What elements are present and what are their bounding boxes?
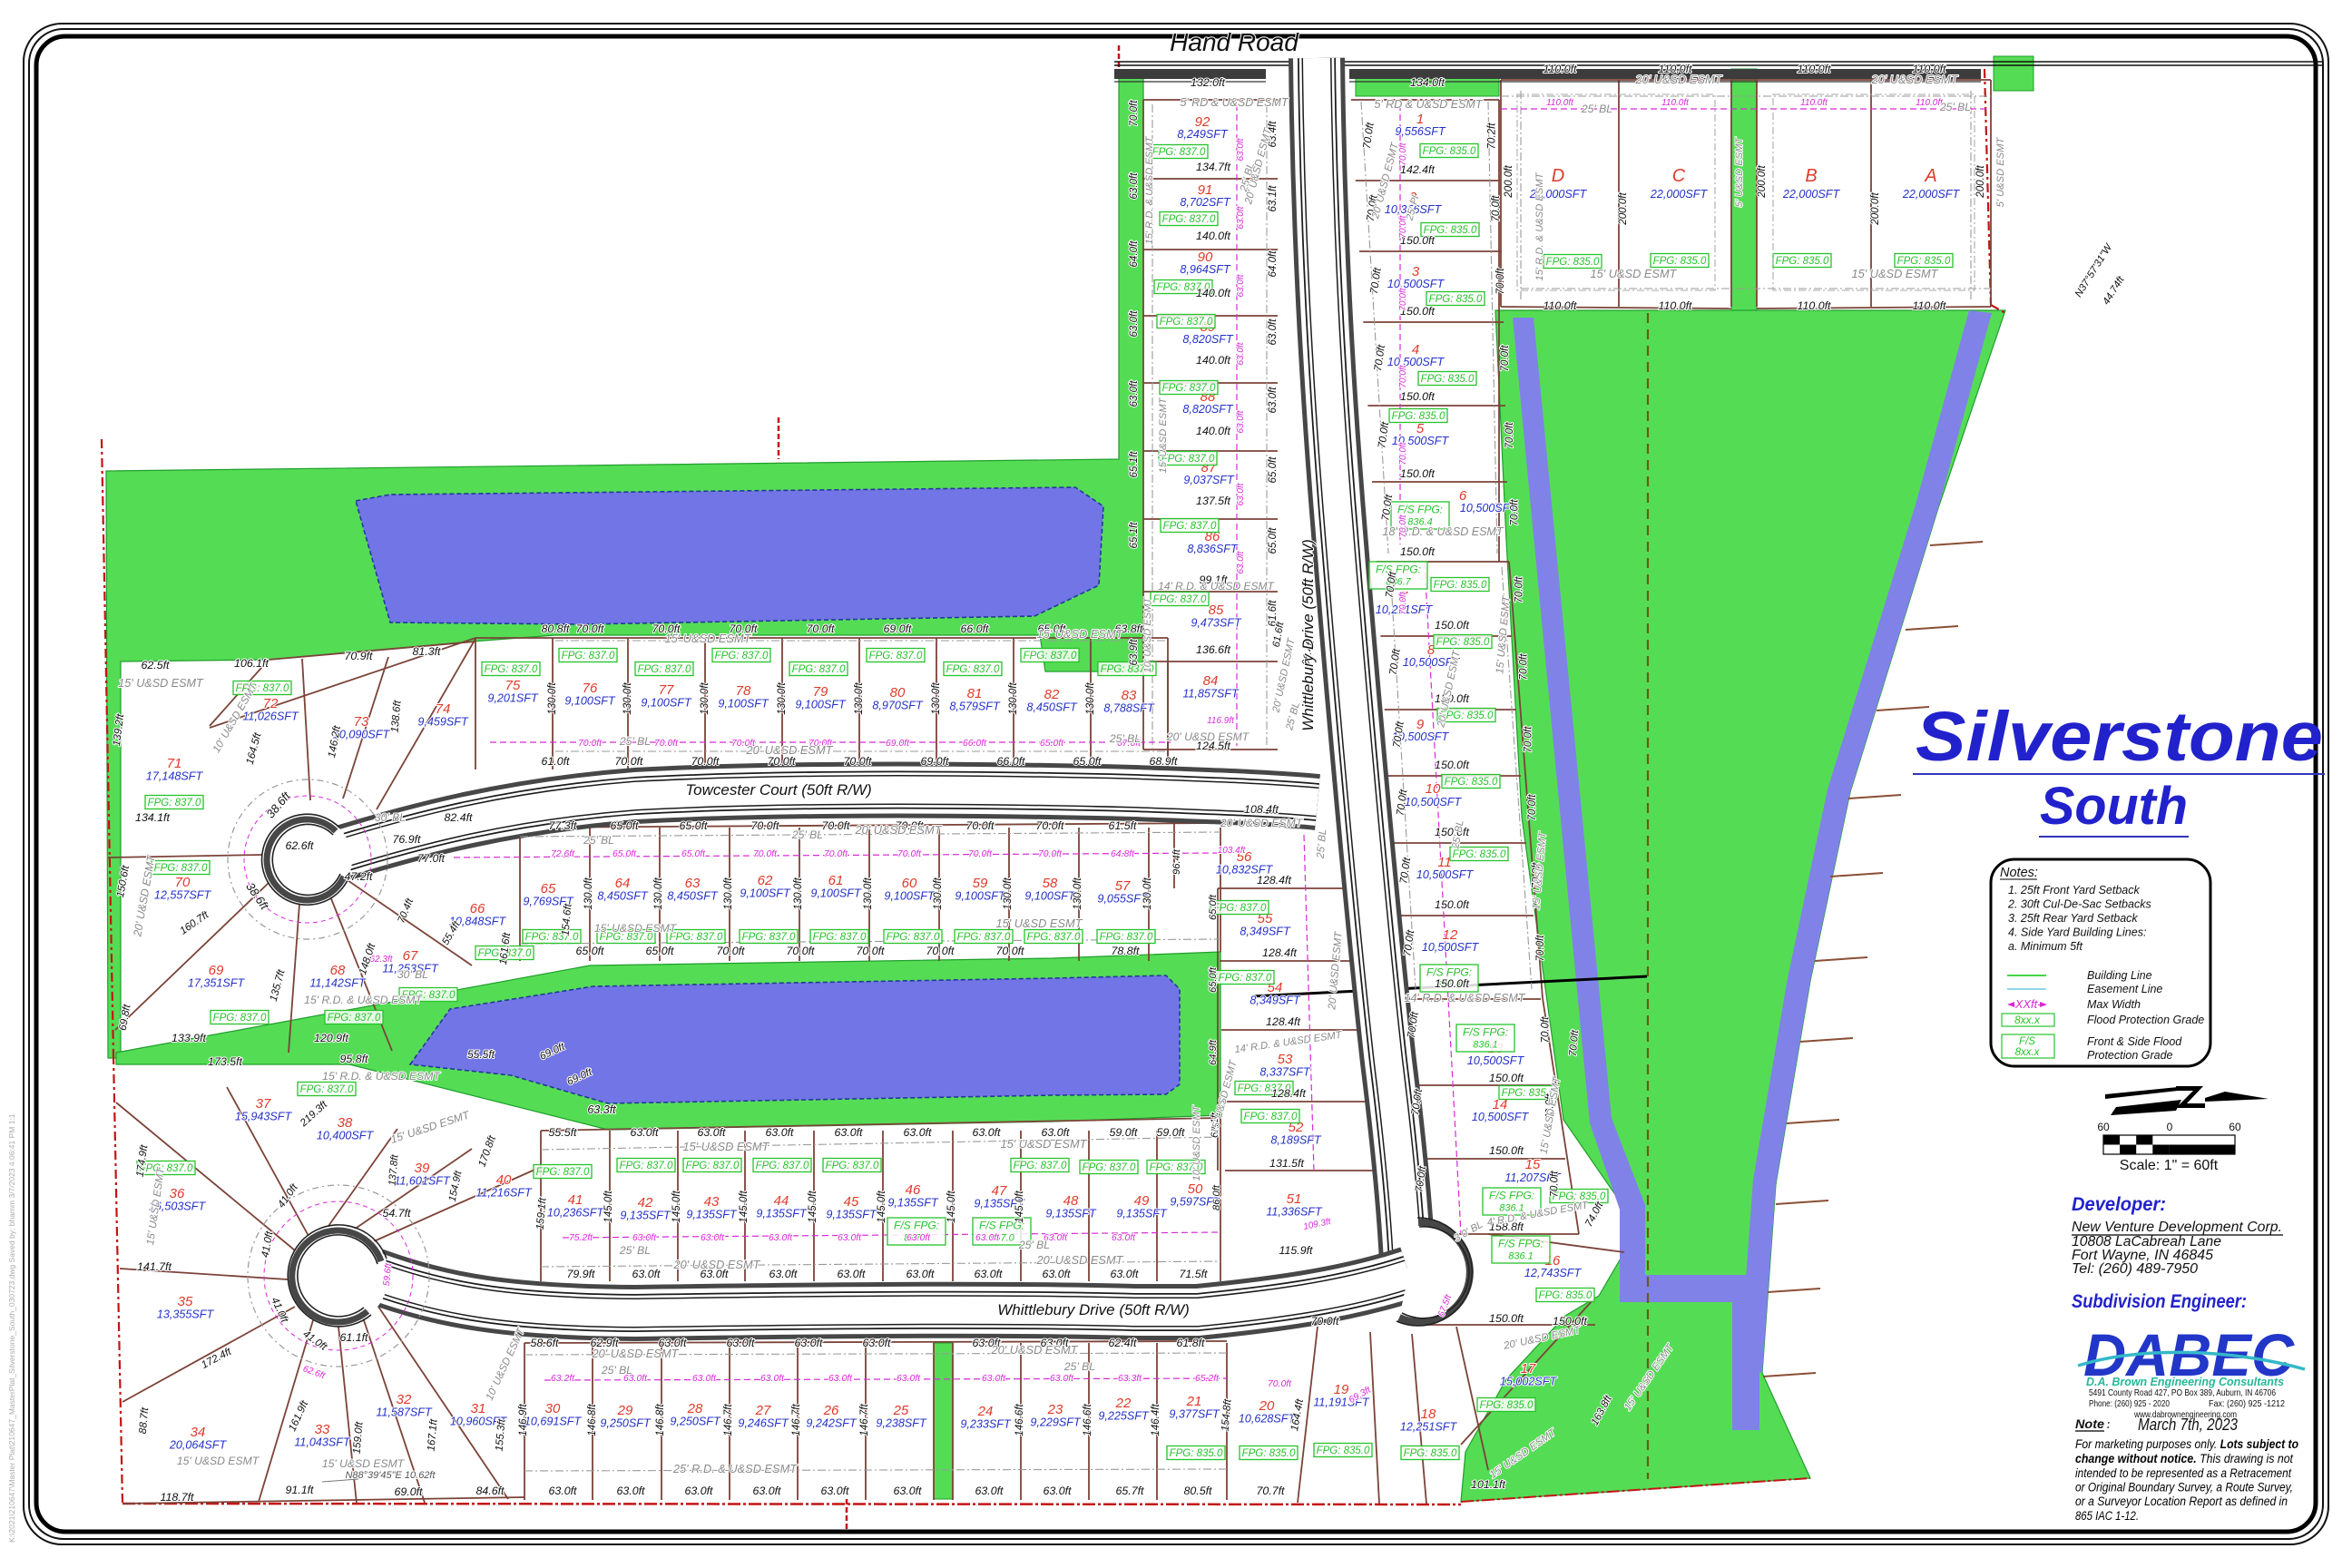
svg-text:18: 18 xyxy=(1421,1406,1436,1422)
svg-text:63.0ft: 63.0ft xyxy=(1128,310,1140,338)
svg-text:5' U&SD ESMT: 5' U&SD ESMT xyxy=(1734,136,1745,207)
svg-text:8,964SFT: 8,964SFT xyxy=(1180,263,1231,276)
svg-text:9,100SFT: 9,100SFT xyxy=(810,887,862,900)
svg-text:145.0ft: 145.0ft xyxy=(876,1191,887,1223)
svg-text:68: 68 xyxy=(330,963,346,978)
svg-text:69.0ft: 69.0ft xyxy=(883,622,912,635)
svg-text:FPG: 837.0: FPG: 837.0 xyxy=(638,664,691,675)
svg-text:82: 82 xyxy=(1044,687,1060,702)
svg-text:62.6ft: 62.6ft xyxy=(285,839,314,852)
svg-text:10,500SFT: 10,500SFT xyxy=(1405,796,1463,808)
svg-text:60: 60 xyxy=(2097,1121,2110,1133)
svg-text:130.0ft: 130.0ft xyxy=(1007,682,1019,715)
svg-text:FPG: 835.0: FPG: 835.0 xyxy=(1453,849,1506,860)
svg-text:9,556SFT: 9,556SFT xyxy=(1395,125,1446,138)
svg-text:14' R.D. & U&SD ESMT: 14' R.D. & U&SD ESMT xyxy=(1158,580,1275,593)
svg-text:77.0ft: 77.0ft xyxy=(417,852,446,865)
svg-text:FPG: 837.0: FPG: 837.0 xyxy=(1244,1112,1298,1122)
svg-text:FPG: 837.0: FPG: 837.0 xyxy=(1083,1162,1136,1173)
svg-text:63.0ft: 63.0ft xyxy=(765,1126,794,1139)
svg-text:8,970SFT: 8,970SFT xyxy=(872,700,924,712)
svg-text:63.0ft: 63.0ft xyxy=(726,1337,755,1349)
svg-text:FPG: 837.0: FPG: 837.0 xyxy=(869,651,923,661)
svg-text:22,000SFT: 22,000SFT xyxy=(1902,188,1961,201)
svg-text:79: 79 xyxy=(813,684,828,700)
svg-text:70.0ft: 70.0ft xyxy=(654,739,679,749)
svg-text:FPG: 837.0: FPG: 837.0 xyxy=(1153,594,1207,605)
svg-text:150.0ft: 150.0ft xyxy=(1489,1072,1524,1084)
svg-text:70.9ft: 70.9ft xyxy=(344,650,373,662)
svg-text:57: 57 xyxy=(1115,878,1131,894)
svg-text:11,216SFT: 11,216SFT xyxy=(475,1187,533,1200)
svg-text:65.2ft: 65.2ft xyxy=(1195,1374,1220,1384)
svg-text:63: 63 xyxy=(685,876,701,891)
svg-text:63.0ft: 63.0ft xyxy=(837,1268,866,1280)
svg-text:25' BL: 25' BL xyxy=(583,834,614,847)
svg-text:FPG: 837.0: FPG: 837.0 xyxy=(887,932,940,943)
svg-text:70.0ft: 70.0ft xyxy=(750,819,779,832)
svg-text:141.7ft: 141.7ft xyxy=(137,1260,171,1273)
svg-text:8,450SFT: 8,450SFT xyxy=(1026,701,1078,714)
svg-text:47.2ft: 47.2ft xyxy=(344,870,373,883)
svg-text:9,201SFT: 9,201SFT xyxy=(487,692,539,705)
svg-text:15' R.D. & U&SD ESMT: 15' R.D. & U&SD ESMT xyxy=(322,1070,441,1083)
svg-text:70.0ft: 70.0ft xyxy=(1035,819,1064,832)
svg-text:70.0ft: 70.0ft xyxy=(786,945,815,957)
svg-text:146.7ft: 146.7ft xyxy=(858,1404,870,1436)
svg-text:FPG: 835.0: FPG: 835.0 xyxy=(1317,1445,1370,1456)
svg-text:FPG: 837.0: FPG: 837.0 xyxy=(1024,651,1077,661)
svg-text:B: B xyxy=(1805,166,1817,186)
svg-text:41: 41 xyxy=(568,1192,583,1208)
svg-text:145.0ft: 145.0ft xyxy=(738,1191,750,1223)
svg-text:59.0ft: 59.0ft xyxy=(1109,1126,1138,1139)
svg-text:70.0ft: 70.0ft xyxy=(1494,268,1506,295)
svg-text:146.8ft: 146.8ft xyxy=(654,1404,666,1436)
svg-text:58: 58 xyxy=(1043,876,1058,891)
svg-text:69: 69 xyxy=(209,963,224,978)
svg-text:FPG: 837.0: FPG: 837.0 xyxy=(686,1161,740,1171)
svg-text:110.0ft: 110.0ft xyxy=(1913,299,1947,312)
svg-text:150.0ft: 150.0ft xyxy=(1489,1144,1524,1157)
svg-text:9,135SFT: 9,135SFT xyxy=(620,1210,671,1222)
svg-text:FPG: 837.0: FPG: 837.0 xyxy=(536,1167,590,1178)
svg-text:63.0ft: 63.0ft xyxy=(632,1233,657,1243)
svg-text:146.7ft: 146.7ft xyxy=(790,1404,802,1436)
svg-text:15' U&SD ESMT: 15' U&SD ESMT xyxy=(683,1140,770,1153)
svg-text:64: 64 xyxy=(615,876,631,891)
svg-text:75.2ft: 75.2ft xyxy=(569,1233,593,1243)
svg-text:145.0ft: 145.0ft xyxy=(603,1191,614,1223)
svg-text:FPG: 835.0: FPG: 835.0 xyxy=(1392,411,1445,422)
svg-text:70.0ft: 70.0ft xyxy=(968,849,993,859)
svg-text:FPG: 837.0: FPG: 837.0 xyxy=(1219,973,1272,984)
svg-text:70.0ft: 70.0ft xyxy=(856,945,885,957)
svg-text:8,450SFT: 8,450SFT xyxy=(597,890,649,903)
svg-text:63.0ft: 63.0ft xyxy=(697,1126,726,1139)
svg-text:25' R.D. & U&SD ESMT: 25' R.D. & U&SD ESMT xyxy=(672,1462,798,1475)
svg-text:70.0ft: 70.0ft xyxy=(716,945,745,957)
svg-text:FPG: 837.0: FPG: 837.0 xyxy=(485,664,538,675)
svg-text:140.0ft: 140.0ft xyxy=(1196,425,1230,437)
svg-text:110.0ft: 110.0ft xyxy=(1798,299,1832,312)
svg-text:63.0ft: 63.0ft xyxy=(1043,1485,1072,1497)
svg-text:15' U&SD ESMT: 15' U&SD ESMT xyxy=(1852,267,1939,280)
svg-text:63.0ft: 63.0ft xyxy=(1128,172,1140,200)
svg-text:110.0ft: 110.0ft xyxy=(1546,98,1574,108)
svg-text:FPG: 837.0: FPG: 837.0 xyxy=(957,932,1011,943)
svg-text:150.0ft: 150.0ft xyxy=(1435,977,1469,990)
svg-text:70.0ft: 70.0ft xyxy=(753,849,778,859)
svg-text:35: 35 xyxy=(178,1294,193,1309)
svg-text:FPG: 837.0: FPG: 837.0 xyxy=(1161,454,1215,465)
svg-text:130.0ft: 130.0ft xyxy=(862,877,874,910)
svg-text:10,400SFT: 10,400SFT xyxy=(317,1130,375,1142)
svg-text:200.0ft: 200.0ft xyxy=(1756,165,1768,199)
svg-text:8,189SFT: 8,189SFT xyxy=(1270,1134,1322,1147)
svg-text:63.0ft: 63.0ft xyxy=(1236,273,1246,297)
svg-text:63.0ft: 63.0ft xyxy=(1050,1374,1074,1384)
svg-text:12,251SFT: 12,251SFT xyxy=(1400,1421,1458,1434)
svg-text:70.0ft: 70.0ft xyxy=(1504,422,1515,449)
svg-text:70.7ft: 70.7ft xyxy=(1256,1485,1285,1497)
svg-text:63.3ft: 63.3ft xyxy=(1118,1374,1142,1384)
svg-text:108.4ft: 108.4ft xyxy=(1244,803,1279,816)
svg-text:20' U&SD ESMT: 20' U&SD ESMT xyxy=(1036,1253,1124,1267)
svg-text:5491 County Road 427, PO Box 3: 5491 County Road 427, PO Box 389, Auburn… xyxy=(2089,1387,2276,1398)
svg-text:20' U&SD ESMT: 20' U&SD ESMT xyxy=(855,823,943,837)
svg-text:150.0ft: 150.0ft xyxy=(1489,1312,1524,1325)
svg-text:8,702SFT: 8,702SFT xyxy=(1180,196,1231,209)
svg-text:31: 31 xyxy=(471,1401,486,1416)
svg-text:38: 38 xyxy=(338,1115,353,1131)
svg-text:69.0ft: 69.0ft xyxy=(886,739,910,749)
svg-text:70.0ft: 70.0ft xyxy=(1490,195,1502,222)
svg-text:FPG: 835.0: FPG: 835.0 xyxy=(1653,256,1707,267)
svg-text:50: 50 xyxy=(1188,1181,1203,1197)
svg-text:11,601SFT: 11,601SFT xyxy=(394,1175,451,1188)
svg-text:Hand Road: Hand Road xyxy=(1170,28,1299,56)
svg-text:10,500SFT: 10,500SFT xyxy=(1387,278,1445,290)
svg-text:65.0ft: 65.0ft xyxy=(575,945,604,957)
svg-text:72.6ft: 72.6ft xyxy=(551,849,575,859)
svg-text:F/S FPG:: F/S FPG: xyxy=(1498,1238,1543,1250)
svg-text:71: 71 xyxy=(167,756,182,771)
svg-text:63.0ft: 63.0ft xyxy=(906,1233,931,1243)
svg-text:63.0ft: 63.0ft xyxy=(769,1233,793,1243)
svg-text:130.0ft: 130.0ft xyxy=(932,877,944,910)
svg-text:20' U&SD ESMT: 20' U&SD ESMT xyxy=(1635,73,1723,86)
svg-text:70.0ft: 70.0ft xyxy=(1398,441,1408,465)
svg-text:15' U&SD ESMT: 15' U&SD ESMT xyxy=(594,922,678,935)
svg-text:A: A xyxy=(1924,166,1936,186)
svg-text:70.0ft: 70.0ft xyxy=(1567,1029,1582,1057)
svg-text:110.0ft: 110.0ft xyxy=(1661,98,1690,108)
svg-text:11,587SFT: 11,587SFT xyxy=(376,1406,433,1419)
svg-text:70.0ft: 70.0ft xyxy=(1038,849,1063,859)
svg-text:9,377SFT: 9,377SFT xyxy=(1169,1408,1220,1421)
svg-text:63.0ft: 63.0ft xyxy=(1236,205,1246,229)
svg-text:F/S FPG:: F/S FPG: xyxy=(1463,1026,1508,1039)
svg-text:130.0ft: 130.0ft xyxy=(722,877,734,910)
svg-text:15' U&SD ESMT: 15' U&SD ESMT xyxy=(996,916,1083,930)
svg-text:2. 30ft Cul-De-Sac Setbacks: 2. 30ft Cul-De-Sac Setbacks xyxy=(2007,898,2151,911)
svg-text:47: 47 xyxy=(992,1183,1007,1199)
svg-text:145.0ft: 145.0ft xyxy=(946,1191,957,1223)
svg-text:78: 78 xyxy=(736,683,751,699)
svg-text:70.0ft: 70.0ft xyxy=(1310,1315,1339,1328)
svg-text:20: 20 xyxy=(1259,1398,1275,1414)
svg-text:Fax: (260) 925 -1212: Fax: (260) 925 -1212 xyxy=(2209,1398,2285,1409)
svg-text:70: 70 xyxy=(175,875,191,890)
svg-text:1. 25ft Front Yard Setback: 1. 25ft Front Yard Setback xyxy=(2008,884,2141,897)
svg-text:8xx.x: 8xx.x xyxy=(2015,1047,2041,1058)
svg-text:70.0ft: 70.0ft xyxy=(843,755,872,768)
svg-text:146.6ft: 146.6ft xyxy=(1082,1404,1093,1436)
svg-text:30: 30 xyxy=(545,1401,561,1416)
svg-text:FPG: 835.0: FPG: 835.0 xyxy=(1423,146,1476,157)
svg-text:FPG: 837.0: FPG: 837.0 xyxy=(1152,147,1206,158)
svg-text:70.0ft: 70.0ft xyxy=(995,945,1024,957)
svg-text:63.0ft: 63.0ft xyxy=(616,1485,645,1497)
svg-text:63.0ft: 63.0ft xyxy=(975,1485,1004,1497)
svg-text:65.0ft: 65.0ft xyxy=(681,849,706,859)
svg-text:63.0ft: 63.0ft xyxy=(548,1485,577,1497)
svg-text:9,238SFT: 9,238SFT xyxy=(876,1417,927,1430)
svg-text:120.9ft: 120.9ft xyxy=(314,1032,348,1044)
svg-text:FPG: 837.0: FPG: 837.0 xyxy=(742,932,796,943)
svg-text:65.0ft: 65.0ft xyxy=(610,819,639,832)
svg-text:59: 59 xyxy=(973,876,988,891)
svg-text:South: South xyxy=(2040,777,2188,836)
svg-text:130.0ft: 130.0ft xyxy=(930,682,942,715)
svg-text:N88°39'45"E 10.62ft: N88°39'45"E 10.62ft xyxy=(345,1470,436,1481)
svg-text:60: 60 xyxy=(2229,1121,2241,1133)
svg-text:15' R.D. & U&SD ESMT: 15' R.D. & U&SD ESMT xyxy=(1534,171,1545,280)
svg-text:Building Line: Building Line xyxy=(2087,969,2152,982)
svg-text:FPG: 837.0: FPG: 837.0 xyxy=(1163,521,1217,532)
svg-text:76: 76 xyxy=(583,681,598,696)
svg-text:9,037SFT: 9,037SFT xyxy=(1183,474,1235,486)
svg-text::: : xyxy=(2107,1417,2110,1431)
svg-text:20' U&SD ESMT: 20' U&SD ESMT xyxy=(746,743,834,757)
svg-text:83: 83 xyxy=(1122,688,1137,703)
svg-text:133.9ft: 133.9ft xyxy=(171,1032,206,1044)
svg-text:63.0ft: 63.0ft xyxy=(630,1126,659,1139)
svg-text:865 IAC 1-12.: 865 IAC 1-12. xyxy=(2075,1509,2139,1523)
svg-text:64.0ft: 64.0ft xyxy=(1128,240,1140,268)
svg-text:15' U&SD ESMT: 15' U&SD ESMT xyxy=(1158,397,1169,473)
svg-text:5' RD & U&SD ESMT: 5' RD & U&SD ESMT xyxy=(1374,98,1483,111)
svg-text:128.4ft: 128.4ft xyxy=(1262,946,1297,959)
svg-text:63.1ft: 63.1ft xyxy=(1267,185,1279,212)
svg-text:43: 43 xyxy=(704,1194,720,1210)
svg-text:74: 74 xyxy=(436,701,451,717)
svg-text:118.7ft: 118.7ft xyxy=(161,1491,195,1504)
svg-text:95.8ft: 95.8ft xyxy=(339,1053,368,1065)
svg-text:5' RD & U&SD ESMT: 5' RD & U&SD ESMT xyxy=(1180,96,1289,109)
svg-text:70.0ft: 70.0ft xyxy=(1522,726,1534,753)
svg-text:12,557SFT: 12,557SFT xyxy=(154,889,212,902)
svg-text:136.6ft: 136.6ft xyxy=(1196,643,1230,656)
svg-text:20' U&SD ESMT: 20' U&SD ESMT xyxy=(592,1347,680,1360)
svg-text:65.0ft: 65.0ft xyxy=(1267,527,1279,554)
svg-text:FPG: 837.0: FPG: 837.0 xyxy=(826,1161,879,1171)
svg-text:131.5ft: 131.5ft xyxy=(1269,1157,1304,1170)
svg-text:28: 28 xyxy=(687,1401,703,1416)
svg-text:70.0ft: 70.0ft xyxy=(806,622,835,635)
svg-text:59.6ft: 59.6ft xyxy=(382,1262,394,1287)
svg-text:84.6ft: 84.6ft xyxy=(475,1485,505,1497)
svg-text:130.0ft: 130.0ft xyxy=(1072,877,1083,910)
svg-text:9,135SFT: 9,135SFT xyxy=(1116,1208,1168,1220)
svg-text:39: 39 xyxy=(415,1161,430,1176)
svg-text:110.0ft: 110.0ft xyxy=(1798,63,1832,75)
svg-text:150.0ft: 150.0ft xyxy=(1435,898,1469,911)
svg-text:55.5ft: 55.5ft xyxy=(548,1126,577,1139)
svg-text:FPG: 837.0: FPG: 837.0 xyxy=(562,651,615,661)
svg-text:84: 84 xyxy=(1203,673,1219,689)
svg-text:70.0ft: 70.0ft xyxy=(1268,1379,1292,1389)
svg-text:91.1ft: 91.1ft xyxy=(285,1484,314,1496)
svg-text:FPG: 835.0: FPG: 835.0 xyxy=(1776,256,1829,267)
svg-text:11,857SFT: 11,857SFT xyxy=(1182,688,1240,701)
svg-text:25: 25 xyxy=(893,1403,909,1418)
svg-text:146.9ft: 146.9ft xyxy=(517,1404,529,1436)
svg-text:27: 27 xyxy=(755,1403,771,1418)
svg-text:8,349SFT: 8,349SFT xyxy=(1240,926,1291,938)
svg-text:Max Width: Max Width xyxy=(2087,998,2141,1011)
svg-text:3. 25ft Rear Yard Setback: 3. 25ft Rear Yard Setback xyxy=(2008,912,2138,925)
svg-text:FPG: 837.0: FPG: 837.0 xyxy=(1213,903,1267,914)
svg-text:65.0ft: 65.0ft xyxy=(645,945,674,957)
svg-text:C: C xyxy=(1672,166,1686,186)
svg-text:130.0ft: 130.0ft xyxy=(1142,877,1153,910)
svg-text:25' BL: 25' BL xyxy=(619,1244,651,1257)
svg-text:FPG: 835.0: FPG: 835.0 xyxy=(1242,1448,1296,1459)
svg-text:70.0ft: 70.0ft xyxy=(1534,935,1546,962)
svg-text:75: 75 xyxy=(505,678,521,693)
svg-text:25' BL: 25' BL xyxy=(1109,732,1141,745)
svg-text:8,349SFT: 8,349SFT xyxy=(1249,995,1301,1007)
svg-text:64.0ft: 64.0ft xyxy=(1267,250,1279,278)
svg-text:9,459SFT: 9,459SFT xyxy=(417,716,469,729)
svg-text:63.0ft: 63.0ft xyxy=(893,1485,922,1497)
svg-text:63.3ft: 63.3ft xyxy=(587,1103,616,1116)
svg-text:128.4ft: 128.4ft xyxy=(1266,1015,1300,1028)
svg-text:FPG: 837.0: FPG: 837.0 xyxy=(148,798,201,808)
svg-text:110.0ft: 110.0ft xyxy=(1543,63,1578,75)
svg-text:10,628SFT: 10,628SFT xyxy=(1239,1413,1297,1426)
svg-text:Subdivision Engineer:: Subdivision Engineer: xyxy=(2072,1291,2247,1312)
svg-text:836.1: 836.1 xyxy=(1508,1251,1534,1262)
svg-text:70.0ft: 70.0ft xyxy=(1128,100,1140,127)
svg-text:13,355SFT: 13,355SFT xyxy=(157,1308,215,1321)
svg-text:63.0ft: 63.0ft xyxy=(1236,550,1246,573)
svg-text:63.0ft: 63.0ft xyxy=(975,1233,1000,1243)
svg-text:29: 29 xyxy=(617,1403,633,1418)
svg-text:130.0ft: 130.0ft xyxy=(699,682,710,715)
svg-text:15' U&SD ESMT: 15' U&SD ESMT xyxy=(322,1457,406,1470)
svg-text:FPG: 837.0: FPG: 837.0 xyxy=(328,1013,381,1024)
svg-text:21: 21 xyxy=(1186,1394,1202,1409)
svg-text:65.1ft: 65.1ft xyxy=(1128,451,1140,478)
svg-text:61.1ft: 61.1ft xyxy=(339,1331,368,1344)
svg-text:15' U&SD ESMT: 15' U&SD ESMT xyxy=(177,1455,260,1467)
svg-text:101.1ft: 101.1ft xyxy=(1471,1478,1505,1491)
svg-text:79.9ft: 79.9ft xyxy=(566,1268,595,1280)
svg-text:130.0ft: 130.0ft xyxy=(622,682,633,715)
svg-text:63.0ft: 63.0ft xyxy=(794,1337,823,1349)
svg-text:140.0ft: 140.0ft xyxy=(1196,287,1230,299)
svg-text:change without notice. This d: change without notice. This drawing is n… xyxy=(2075,1452,2294,1465)
svg-text:62.4ft: 62.4ft xyxy=(1108,1337,1137,1349)
svg-text:65.0ft: 65.0ft xyxy=(1073,755,1102,768)
svg-text:63.0ft: 63.0ft xyxy=(974,1268,1003,1280)
svg-text:Flood Protection Grade: Flood Protection Grade xyxy=(2087,1014,2204,1026)
svg-text:9,100SFT: 9,100SFT xyxy=(884,890,936,903)
svg-text:140.0ft: 140.0ft xyxy=(1196,354,1230,367)
svg-text:Scale: 1" = 60ft: Scale: 1" = 60ft xyxy=(2120,1158,2219,1173)
svg-text:65: 65 xyxy=(541,881,556,897)
svg-text:63.0ft: 63.0ft xyxy=(834,1126,863,1139)
svg-text:45: 45 xyxy=(844,1194,859,1210)
svg-text:11,043SFT: 11,043SFT xyxy=(294,1436,351,1449)
svg-text:70.0ft: 70.0ft xyxy=(1526,794,1538,821)
svg-text:11,336SFT: 11,336SFT xyxy=(1266,1206,1323,1219)
svg-text:FPG: 835.0: FPG: 835.0 xyxy=(1436,637,1490,648)
svg-text:70.0ft: 70.0ft xyxy=(1398,364,1408,387)
svg-text:200.0ft: 200.0ft xyxy=(1503,165,1514,199)
svg-text:F/S FPG:: F/S FPG: xyxy=(894,1220,939,1232)
svg-text:FPG: 835.0: FPG: 835.0 xyxy=(1539,1290,1592,1301)
svg-text:11,142SFT: 11,142SFT xyxy=(309,977,367,990)
svg-text:9,135SFT: 9,135SFT xyxy=(887,1197,939,1210)
svg-text:19: 19 xyxy=(1334,1382,1349,1397)
svg-text:65.0ft: 65.0ft xyxy=(612,849,637,859)
svg-text:68.9ft: 68.9ft xyxy=(1149,755,1178,768)
svg-text:65.0ft: 65.0ft xyxy=(679,819,708,832)
svg-text:8,249SFT: 8,249SFT xyxy=(1177,128,1229,141)
svg-text:FPG: 835.0: FPG: 835.0 xyxy=(1170,1448,1223,1459)
svg-text:or a Surveyor Location Report: or a Surveyor Location Report as defined… xyxy=(2075,1494,2288,1508)
svg-text:8,820SFT: 8,820SFT xyxy=(1182,403,1234,416)
svg-text:9,229SFT: 9,229SFT xyxy=(1030,1416,1082,1429)
svg-text:130.0ft: 130.0ft xyxy=(652,877,664,910)
svg-text:146.7ft: 146.7ft xyxy=(722,1404,734,1436)
svg-text:37: 37 xyxy=(256,1096,271,1112)
svg-text:10,691SFT: 10,691SFT xyxy=(524,1416,583,1428)
svg-text:145.0ft: 145.0ft xyxy=(807,1191,818,1223)
svg-text:63.0ft: 63.0ft xyxy=(684,1485,713,1497)
svg-text:9,135SFT: 9,135SFT xyxy=(686,1209,738,1221)
svg-text:20' U&SD ESMT: 20' U&SD ESMT xyxy=(991,1343,1079,1357)
svg-text:FPG: 837.0: FPG: 837.0 xyxy=(1014,1161,1067,1171)
svg-text:March 7th, 2023: March 7th, 2023 xyxy=(2138,1416,2238,1434)
svg-text:137.5ft: 137.5ft xyxy=(1196,495,1230,507)
svg-text:15' U&SD ESMT: 15' U&SD ESMT xyxy=(1591,267,1678,280)
svg-text:63.9ft: 63.9ft xyxy=(1128,639,1140,666)
svg-text:64.9ft: 64.9ft xyxy=(1208,1039,1219,1065)
svg-text:81.3ft: 81.3ft xyxy=(412,645,441,658)
svg-text:103.4ft: 103.4ft xyxy=(1218,846,1247,856)
svg-text:71.5ft: 71.5ft xyxy=(1179,1268,1208,1280)
svg-text:200.0ft: 200.0ft xyxy=(1869,192,1881,226)
svg-text:116.9ft: 116.9ft xyxy=(1207,716,1235,726)
svg-text:9,100SFT: 9,100SFT xyxy=(564,695,616,708)
svg-text:Notes:: Notes: xyxy=(2000,866,2038,880)
svg-text:63.0ft: 63.0ft xyxy=(701,1233,725,1243)
